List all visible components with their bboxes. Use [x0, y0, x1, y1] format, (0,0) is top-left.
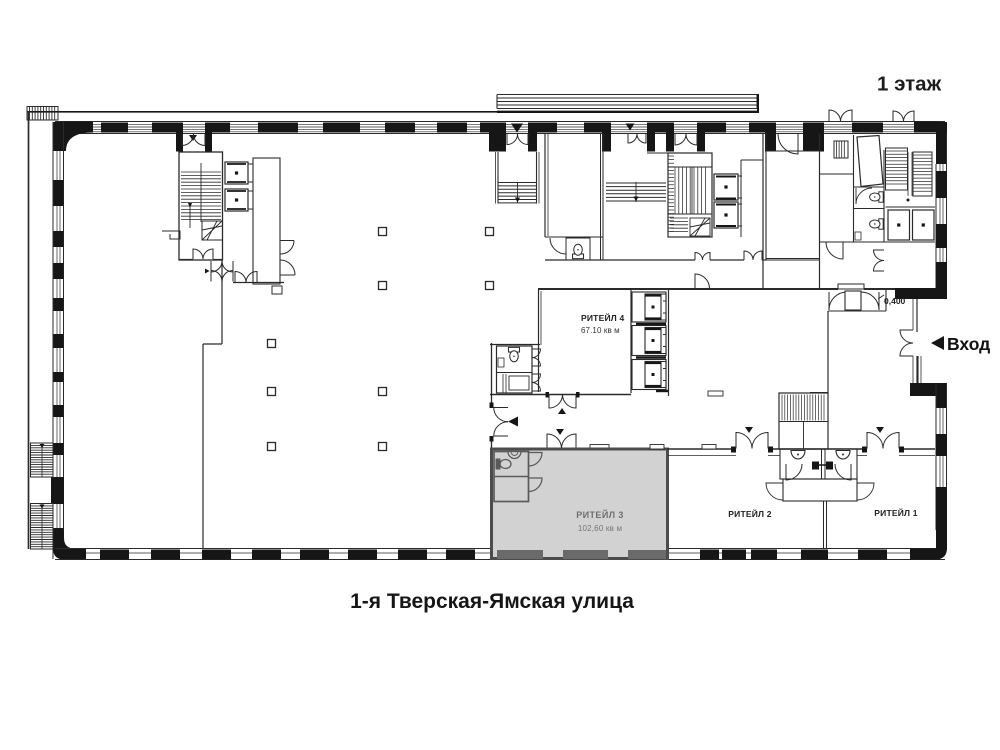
svg-text:РИТЕЙЛ 4: РИТЕЙЛ 4 — [581, 312, 624, 323]
svg-text:102,60 кв м: 102,60 кв м — [578, 524, 622, 533]
svg-text:67.10 кв м: 67.10 кв м — [581, 326, 620, 335]
svg-text:РИТЕЙЛ 3: РИТЕЙЛ 3 — [576, 509, 623, 520]
svg-text:1 этаж: 1 этаж — [877, 73, 942, 96]
svg-text:1-я Тверская-Ямская улица: 1-я Тверская-Ямская улица — [350, 590, 634, 613]
svg-text:РИТЕЙЛ 2: РИТЕЙЛ 2 — [728, 508, 771, 519]
svg-text:Вход: Вход — [947, 334, 990, 354]
svg-text:РИТЕЙЛ 1: РИТЕЙЛ 1 — [874, 507, 917, 518]
svg-text:0,400: 0,400 — [884, 296, 906, 306]
